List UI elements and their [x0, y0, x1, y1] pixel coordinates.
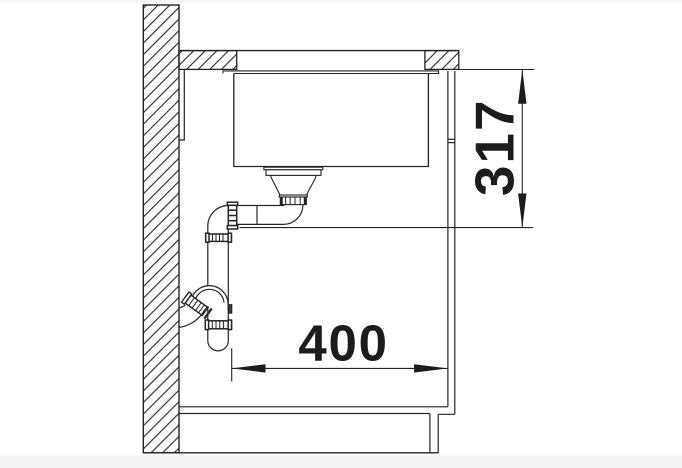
svg-text:317: 317	[464, 98, 526, 196]
svg-text:400: 400	[298, 315, 389, 372]
